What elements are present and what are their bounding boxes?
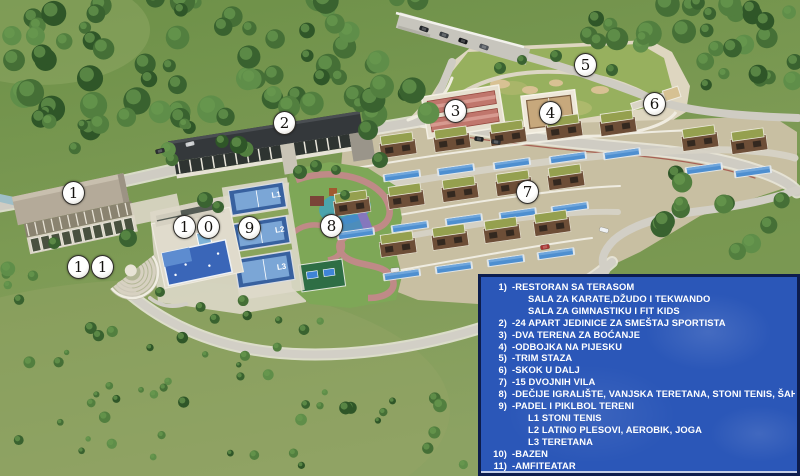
legend-item-number <box>484 412 507 424</box>
legend-item-text: -DVA TERENA ZA BOĆANJE <box>512 329 795 341</box>
legend-item-number: 10) <box>484 448 507 460</box>
legend-item-text: -ODBOJKA NA PIJESKU <box>512 341 795 353</box>
legend-row: 6)-SKOK U DALJ <box>484 364 795 376</box>
legend-row: 11)-AMFITEATAR <box>484 460 795 472</box>
legend-item-number: 8) <box>484 388 507 400</box>
legend-row: 5)-TRIM STAZA <box>484 352 795 364</box>
legend-item-text: -DEČIJE IGRALIŠTE, VANJSKA TERETANA, STO… <box>512 388 795 400</box>
legend-row: 2)-24 APART JEDINICE ZA SMEŠTAJ SPORTIST… <box>484 317 795 329</box>
legend-panel: 1)-RESTORAN SA TERASOMSALA ZA KARATE,DŽU… <box>478 274 800 476</box>
legend-item-number: 5) <box>484 352 507 364</box>
legend-item-text: -BAZEN <box>512 448 795 460</box>
site-plan-rendering: L1 L2 L3 <box>0 0 800 476</box>
legend-row: 1)-RESTORAN SA TERASOM <box>484 281 795 293</box>
legend-item-text: -SKOK U DALJ <box>512 364 795 376</box>
legend-item-text: -RESTORAN SA TERASOM <box>512 281 795 293</box>
legend-item-number: 2) <box>484 317 507 329</box>
legend-item-number: 7) <box>484 376 507 388</box>
legend-item-text: L3 TERETANA <box>512 436 795 448</box>
legend-item-text: L2 LATINO PLESOVI, AEROBIK, JOGA <box>512 424 795 436</box>
legend-item-number: 6) <box>484 364 507 376</box>
legend-item-text: -24 APART JEDINICE ZA SMEŠTAJ SPORTISTA <box>512 317 795 329</box>
legend-row: 9)-PADEL I PIKLBOL TERENI <box>484 400 795 412</box>
legend-row: 8)-DEČIJE IGRALIŠTE, VANJSKA TERETANA, S… <box>484 388 795 400</box>
legend-item-number: 9) <box>484 400 507 412</box>
legend-item-number: 11) <box>484 460 507 472</box>
legend-item-text: SALA ZA GIMNASTIKU I FIT KIDS <box>512 305 795 317</box>
car <box>390 267 399 272</box>
legend-row: L1 STONI TENIS <box>484 412 795 424</box>
legend-row: 3)-DVA TERENA ZA BOĆANJE <box>484 329 795 341</box>
legend-rows: 1)-RESTORAN SA TERASOMSALA ZA KARATE,DŽU… <box>484 281 795 472</box>
legend-item-number <box>484 305 507 317</box>
legend-row: L3 TERETANA <box>484 436 795 448</box>
legend-item-text: -15 DVOJNIH VILA <box>512 376 795 388</box>
legend-item-number <box>484 436 507 448</box>
legend-row: L2 LATINO PLESOVI, AEROBIK, JOGA <box>484 424 795 436</box>
table-tennis-court <box>298 259 345 292</box>
legend-item-number: 1) <box>484 281 507 293</box>
legend-item-text: L1 STONI TENIS <box>512 412 795 424</box>
legend-item-number: 4) <box>484 341 507 353</box>
legend-item-text: -AMFITEATAR <box>512 460 795 472</box>
legend-row: SALA ZA KARATE,DŽUDO I TEKWANDO <box>484 293 795 305</box>
legend-item-text: -TRIM STAZA <box>512 352 795 364</box>
legend-row: 4)-ODBOJKA NA PIJESKU <box>484 341 795 353</box>
legend-item-number <box>484 293 507 305</box>
legend-item-text: -PADEL I PIKLBOL TERENI <box>512 400 795 412</box>
legend-row: SALA ZA GIMNASTIKU I FIT KIDS <box>484 305 795 317</box>
legend-row: 10)-BAZEN <box>484 448 795 460</box>
legend-item-number: 3) <box>484 329 507 341</box>
legend-item-text: SALA ZA KARATE,DŽUDO I TEKWANDO <box>512 293 795 305</box>
legend-item-number <box>484 424 507 436</box>
legend-row: 7)-15 DVOJNIH VILA <box>484 376 795 388</box>
